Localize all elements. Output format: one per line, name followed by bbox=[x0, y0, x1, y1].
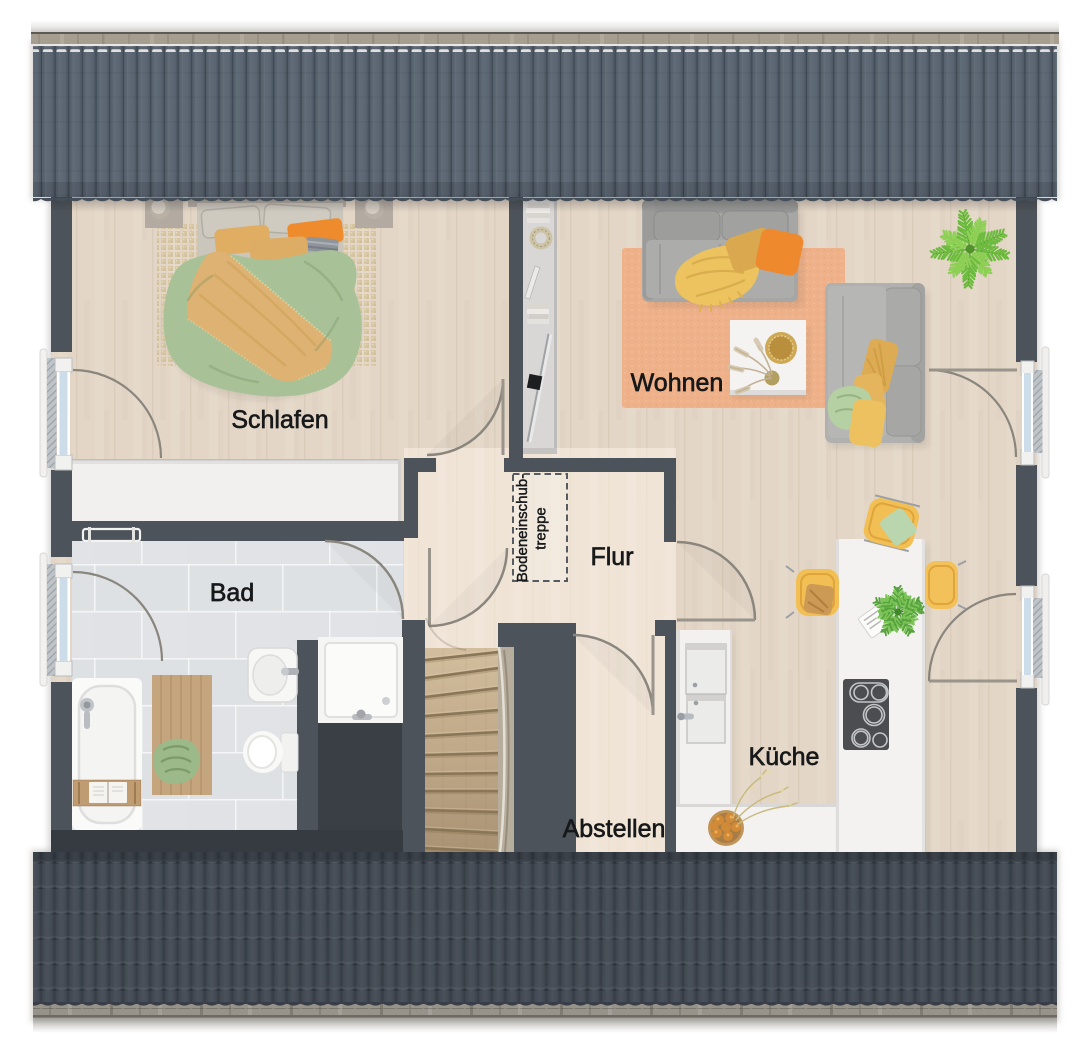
svg-text:Schlafen: Schlafen bbox=[231, 406, 328, 434]
svg-text:Flur: Flur bbox=[590, 543, 633, 571]
svg-text:Bodeneinschub-: Bodeneinschub- bbox=[514, 474, 531, 582]
svg-text:Abstellen: Abstellen bbox=[563, 815, 666, 843]
svg-text:Bad: Bad bbox=[210, 579, 254, 607]
svg-text:Küche: Küche bbox=[749, 743, 820, 771]
svg-text:Wohnen: Wohnen bbox=[631, 369, 724, 397]
svg-text:treppe: treppe bbox=[533, 507, 550, 550]
